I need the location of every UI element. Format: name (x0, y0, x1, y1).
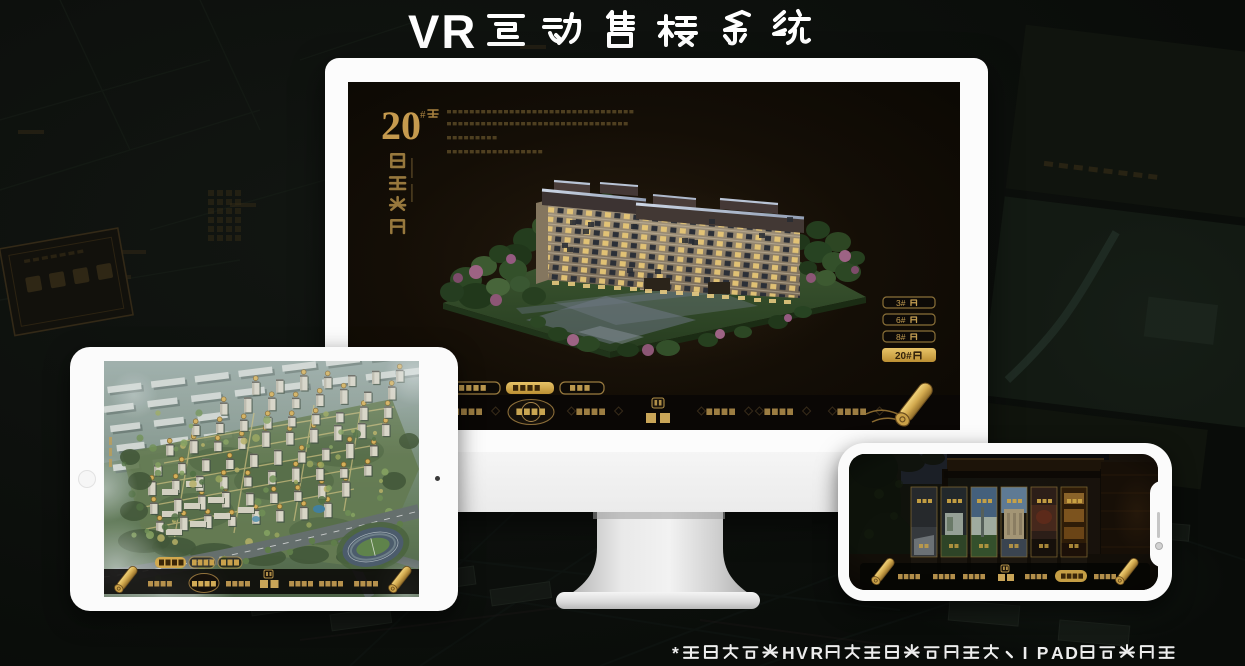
svg-text:R: R (810, 643, 823, 663)
svg-text:H: H (782, 643, 795, 663)
svg-text:*: * (672, 643, 679, 663)
svg-text:20: 20 (381, 103, 421, 148)
svg-text:20#: 20# (895, 351, 912, 362)
svg-text:8#: 8# (896, 332, 906, 342)
svg-text:#: # (420, 109, 426, 121)
svg-text:VR: VR (408, 5, 477, 58)
svg-text:6#: 6# (896, 315, 906, 325)
svg-text:3#: 3# (896, 298, 906, 308)
svg-text:D: D (1065, 643, 1078, 663)
svg-text:I: I (1023, 643, 1028, 663)
svg-text:P: P (1037, 643, 1049, 663)
svg-text:A: A (1051, 643, 1064, 663)
svg-text:V: V (796, 643, 808, 663)
